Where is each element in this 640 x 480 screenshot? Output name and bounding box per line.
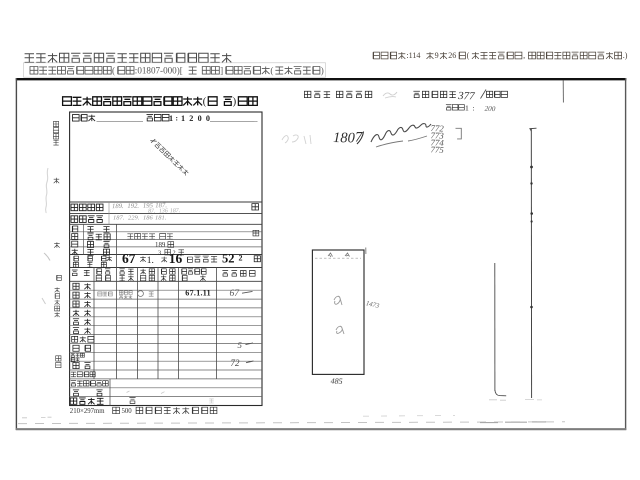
svg-text:3: 3 bbox=[158, 250, 161, 257]
svg-text::114: :114 bbox=[406, 51, 420, 60]
svg-text:): ) bbox=[233, 96, 236, 107]
svg-text:67: 67 bbox=[230, 289, 241, 299]
svg-text:(: ( bbox=[270, 65, 273, 75]
svg-text:775: 775 bbox=[430, 144, 444, 154]
svg-text:72: 72 bbox=[231, 358, 241, 368]
svg-text:189.: 189. bbox=[112, 203, 124, 210]
svg-text:200: 200 bbox=[484, 105, 496, 114]
svg-text:]: ] bbox=[220, 65, 223, 75]
svg-text:(: ( bbox=[203, 96, 207, 107]
svg-text:485: 485 bbox=[330, 377, 342, 386]
svg-text:(: ( bbox=[467, 51, 470, 60]
svg-text:.): .) bbox=[623, 51, 628, 60]
svg-text:181.: 181. bbox=[155, 214, 167, 221]
svg-text:1200: 1200 bbox=[181, 114, 214, 123]
svg-text:(: ( bbox=[112, 65, 115, 75]
svg-text:67.1.11: 67.1.11 bbox=[185, 289, 211, 298]
svg-text:192.: 192. bbox=[127, 203, 139, 210]
svg-text:189: 189 bbox=[155, 242, 166, 249]
svg-text:9: 9 bbox=[435, 51, 439, 60]
svg-text:377: 377 bbox=[457, 90, 475, 103]
svg-text:16: 16 bbox=[169, 251, 183, 266]
svg-text:26: 26 bbox=[448, 51, 456, 60]
svg-text:1: 1 bbox=[169, 114, 173, 123]
svg-text:500: 500 bbox=[122, 408, 133, 415]
svg-text:210×297mm: 210×297mm bbox=[70, 408, 106, 415]
svg-text:229.: 229. bbox=[128, 214, 140, 221]
svg-text:186: 186 bbox=[143, 214, 154, 221]
svg-text:1: 1 bbox=[465, 104, 469, 113]
svg-text:187.: 187. bbox=[113, 214, 125, 221]
svg-text:187.: 187. bbox=[170, 208, 180, 214]
svg-text:67: 67 bbox=[122, 251, 136, 266]
svg-text::: : bbox=[473, 104, 475, 112]
svg-text:180: 180 bbox=[333, 130, 356, 146]
svg-text:): ) bbox=[321, 65, 324, 75]
svg-text:1.: 1. bbox=[147, 256, 154, 266]
svg-text:2: 2 bbox=[239, 254, 243, 263]
svg-text:5: 5 bbox=[238, 340, 243, 350]
svg-text::: : bbox=[176, 113, 179, 122]
svg-text::01807-000)[: :01807-000)[ bbox=[135, 65, 183, 75]
svg-text:,: , bbox=[523, 51, 525, 60]
svg-text:52: 52 bbox=[222, 251, 235, 265]
